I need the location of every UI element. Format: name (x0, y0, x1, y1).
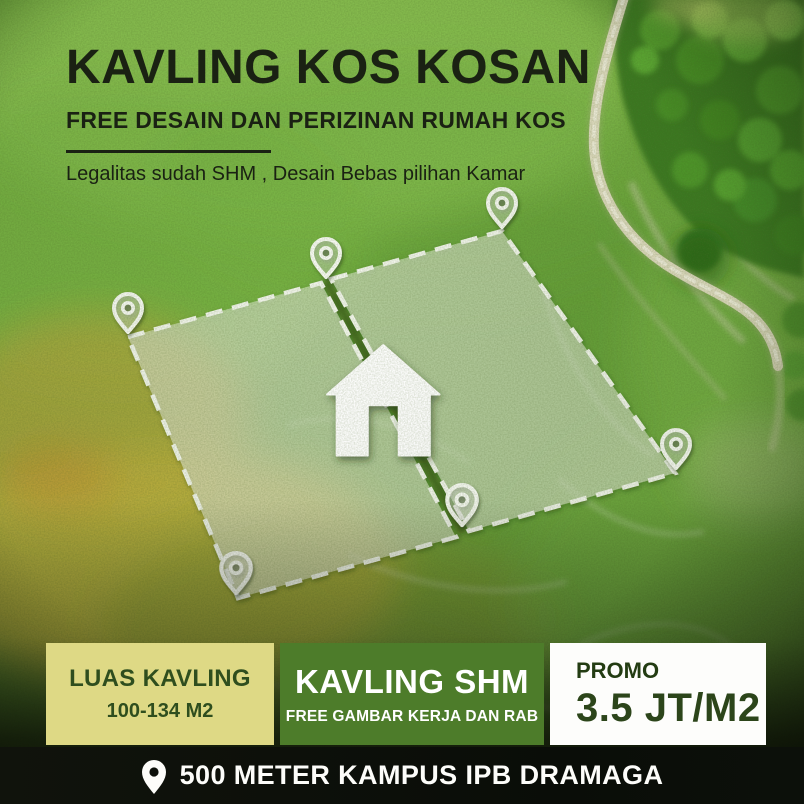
info-box-kavling-shm: KAVLING SHM FREE GAMBAR KERJA DAN RAB (280, 643, 544, 745)
footer-bar: 500 METER KAMPUS IPB DRAMAGA (0, 747, 804, 804)
info-box-luas-kavling: LUAS KAVLING 100-134 M2 (46, 643, 274, 745)
info-box-promo: PROMO 3.5 JT/M2 (550, 643, 766, 745)
area-title: LUAS KAVLING (69, 665, 251, 693)
kavling-promo-poster: KAVLING KOS KOSAN FREE DESAIN DAN PERIZI… (0, 0, 804, 804)
header: KAVLING KOS KOSAN FREE DESAIN DAN PERIZI… (66, 44, 591, 186)
info-box-row: LUAS KAVLING 100-134 M2 KAVLING SHM FREE… (46, 643, 766, 745)
promo-value: 3.5 JT/M2 (576, 686, 761, 731)
legal-title: KAVLING SHM (295, 663, 529, 701)
header-tagline: Legalitas sudah SHM , Desain Bebas pilih… (66, 163, 591, 186)
footer-location-text: 500 METER KAMPUS IPB DRAMAGA (180, 760, 664, 791)
header-subtitle: FREE DESAIN DAN PERIZINAN RUMAH KOS (66, 107, 591, 134)
legal-subtitle: FREE GAMBAR KERJA DAN RAB (286, 708, 538, 726)
area-value: 100-134 M2 (107, 700, 214, 723)
header-divider (66, 150, 271, 153)
location-pin-icon (141, 758, 167, 794)
page-title: KAVLING KOS KOSAN (66, 44, 591, 92)
promo-label: PROMO (576, 658, 659, 684)
